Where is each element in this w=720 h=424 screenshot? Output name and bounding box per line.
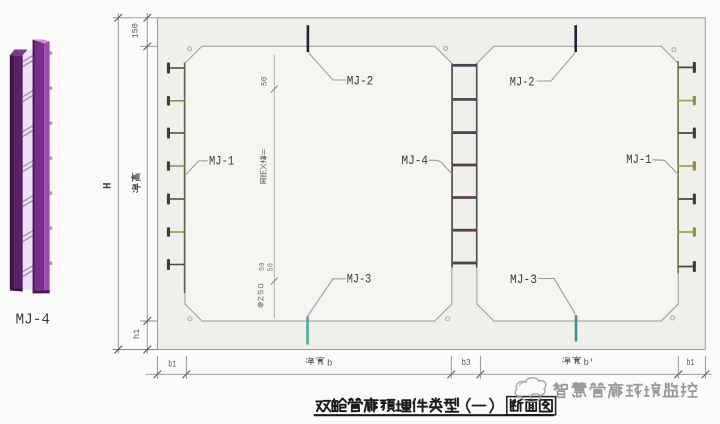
svg-text:50: 50 — [268, 263, 276, 271]
svg-text:MJ-4: MJ-4 — [402, 154, 429, 168]
svg-text:b1: b1 — [687, 358, 695, 368]
svg-text:MJ-1: MJ-1 — [209, 154, 234, 168]
svg-text:b: b — [327, 359, 332, 369]
svg-text:MJ-2: MJ-2 — [347, 75, 374, 89]
svg-text:h1: h1 — [132, 329, 142, 339]
svg-text:MJ-1: MJ-1 — [626, 153, 651, 167]
svg-text:H: H — [103, 182, 115, 189]
svg-text:b': b' — [584, 358, 595, 368]
svg-text:150: 150 — [131, 23, 141, 38]
svg-text:MJ-2: MJ-2 — [510, 75, 535, 89]
svg-text:MJ-3: MJ-3 — [347, 273, 372, 287]
svg-text:50: 50 — [261, 76, 270, 86]
svg-text:b3: b3 — [462, 358, 471, 368]
svg-text:b1: b1 — [168, 359, 176, 369]
svg-text:50: 50 — [259, 263, 267, 271]
svg-text:MJ-4: MJ-4 — [16, 313, 51, 329]
svg-text:MJ-3: MJ-3 — [510, 273, 537, 287]
